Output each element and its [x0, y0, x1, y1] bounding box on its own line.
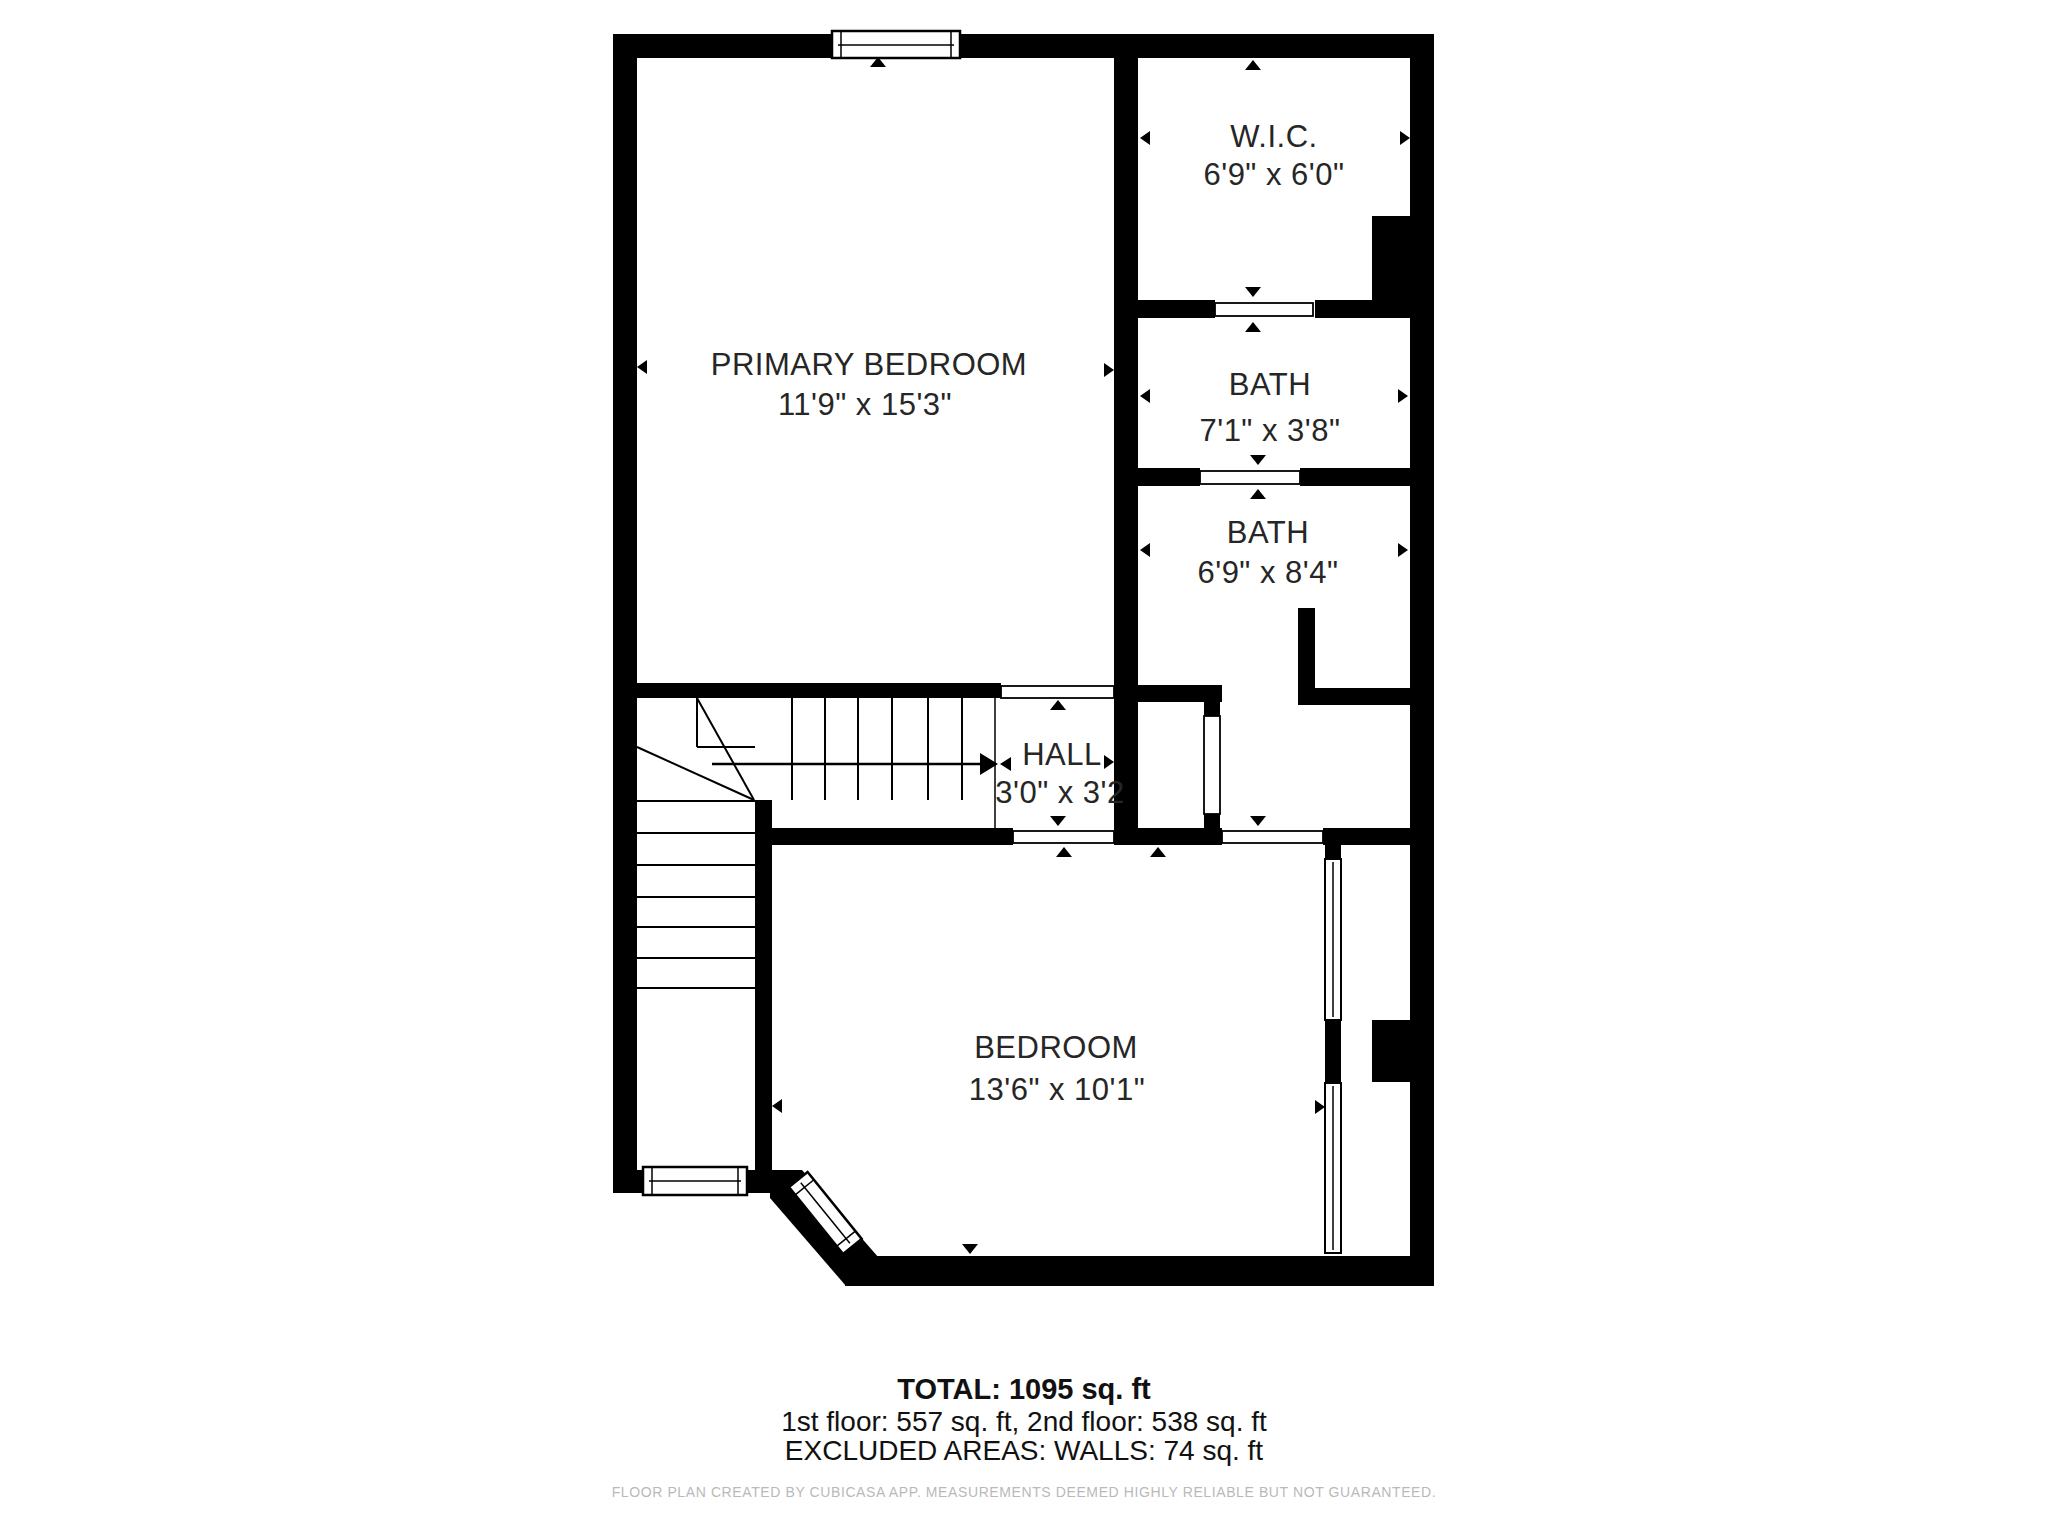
door-hall-bedroom [1013, 831, 1114, 843]
arrow-right-primary [1104, 363, 1114, 377]
arrow-down-bath-door [1250, 455, 1266, 465]
arrow-down-bath-lower-door [1250, 816, 1266, 826]
door-bath-lower [1222, 831, 1323, 843]
room-dims-hall: 3'0" x 3'2 [995, 775, 1125, 810]
room-label-bath-upper: BATH [1229, 367, 1311, 402]
room-label-bedroom: BEDROOM [974, 1030, 1138, 1065]
wall-bottom [845, 1256, 1434, 1286]
room-dims-bedroom: 13'6" x 10'1" [969, 1072, 1146, 1107]
wall-vestibule-door-cap-top [1204, 685, 1220, 716]
wall-bedroom-top-middle [1114, 828, 1222, 845]
window-icon-top [832, 31, 960, 58]
room-dims-primary-bedroom: 11'9" x 15'3" [778, 387, 952, 422]
arrow-up-hall [1050, 700, 1066, 710]
wall-thin-cap-top [1325, 845, 1341, 859]
wall-wic-corner-block [1372, 216, 1412, 310]
arrow-right-wic [1400, 131, 1410, 145]
door-wic [1215, 303, 1313, 316]
door-vestibule [1204, 716, 1220, 814]
wall-bedroom-top-right [1323, 828, 1412, 845]
arrow-left-bath-lower [1140, 543, 1150, 557]
arrow-down-wic-door [1245, 287, 1261, 297]
room-label-hall: HALL [1022, 737, 1102, 772]
floor-plan-page: PRIMARY BEDROOM 11'9" x 15'3" W.I.C. 6'9… [0, 0, 2048, 1536]
arrow-right-bath-upper [1398, 389, 1408, 403]
door-hall-top [1001, 686, 1114, 698]
arrow-left-bedroom [772, 1099, 782, 1113]
door-bath-upper [1200, 471, 1300, 484]
arrow-right-bath-lower [1398, 543, 1408, 557]
wall-bath-divider-left [1114, 468, 1200, 486]
arrow-up-bedroom-door [1056, 847, 1072, 857]
wall-wic-bottom-left [1138, 300, 1215, 318]
arrow-right-bedroom [1315, 1100, 1325, 1114]
arrow-up-bath-door [1250, 489, 1266, 499]
room-dims-bath-lower: 6'9" x 8'4" [1197, 555, 1338, 590]
room-dims-wic: 6'9" x 6'0" [1203, 157, 1344, 192]
footer-disclaimer: FLOOR PLAN CREATED BY CUBICASA APP. MEAS… [612, 1484, 1437, 1500]
room-dims-bath-upper: 7'1" x 3'8" [1199, 413, 1340, 448]
arrow-left-primary [637, 360, 647, 374]
summary: TOTAL: 1095 sq. ft 1st floor: 557 sq. ft… [612, 1373, 1437, 1500]
room-label-primary-bedroom: PRIMARY BEDROOM [711, 347, 1027, 382]
wall-right-protrusion-block [1372, 1020, 1412, 1082]
summary-total: TOTAL: 1095 sq. ft [897, 1373, 1151, 1405]
wall-bedroom-top-left [772, 828, 1013, 845]
summary-floors: 1st floor: 557 sq. ft, 2nd floor: 538 sq… [781, 1406, 1267, 1437]
windows [643, 31, 1341, 1254]
window-icon-right-lower [1325, 1083, 1341, 1253]
stair-direction-arrow [712, 753, 1011, 775]
wall-stair-right [755, 800, 772, 1170]
arrow-down-bedroom [962, 1244, 978, 1254]
wall-center-vertical [1114, 34, 1138, 845]
summary-excluded: EXCLUDED AREAS: WALLS: 74 sq. ft [785, 1435, 1263, 1466]
room-label-bath-lower: BATH [1227, 515, 1309, 550]
floor-plan-canvas: PRIMARY BEDROOM 11'9" x 15'3" W.I.C. 6'9… [0, 0, 2048, 1536]
arrow-left-bath-upper [1140, 389, 1150, 403]
wall-top [613, 34, 1434, 58]
wall-left [613, 34, 637, 1193]
window-icon-bottom-left [643, 1167, 747, 1195]
wall-thin-middle-block [1325, 1020, 1341, 1083]
window-icon-right-upper [1325, 859, 1341, 1020]
arrow-left-wic [1140, 131, 1150, 145]
wall-stair-top [637, 683, 1001, 698]
wall-bath-divider-right [1300, 468, 1412, 486]
room-labels: PRIMARY BEDROOM 11'9" x 15'3" W.I.C. 6'9… [711, 119, 1345, 1107]
arrow-up-bedroom-door2 [1150, 847, 1166, 857]
arrow-up-wic [1245, 60, 1261, 70]
arrow-up-wic-door [1245, 322, 1261, 332]
wall-bath-nook-horizontal [1315, 688, 1412, 705]
room-label-wic: W.I.C. [1230, 119, 1317, 154]
wall-bath-nook-vertical [1298, 608, 1315, 705]
arrow-right-hall [1104, 755, 1114, 769]
arrow-down-hall [1050, 816, 1066, 826]
wall-right [1410, 34, 1434, 1286]
